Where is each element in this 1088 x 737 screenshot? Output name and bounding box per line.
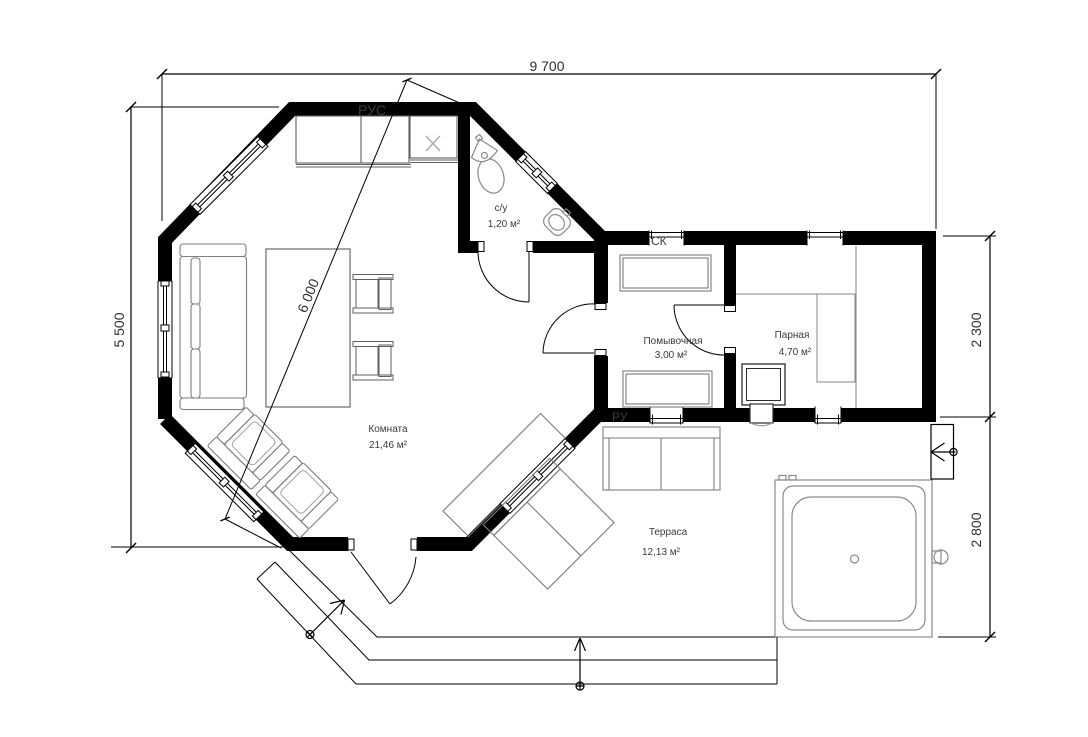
svg-text:5 500: 5 500: [111, 312, 127, 347]
svg-text:Помывочная: Помывочная: [643, 336, 702, 347]
svg-text:4,70 м²: 4,70 м²: [779, 347, 812, 358]
svg-text:с/у: с/у: [495, 203, 508, 214]
svg-text:СК: СК: [651, 234, 667, 248]
svg-text:9 700: 9 700: [529, 58, 564, 74]
svg-text:1,20 м²: 1,20 м²: [488, 219, 521, 230]
svg-text:Терраса: Терраса: [649, 527, 688, 538]
svg-text:2 800: 2 800: [968, 512, 984, 547]
svg-text:3,00 м²: 3,00 м²: [655, 350, 688, 361]
svg-text:Комната: Комната: [368, 424, 408, 435]
svg-text:21,46 м²: 21,46 м²: [369, 440, 408, 451]
svg-text:РУ: РУ: [612, 410, 628, 424]
svg-text:2 300: 2 300: [968, 312, 984, 347]
svg-text:12,13 м²: 12,13 м²: [642, 547, 681, 558]
svg-text:Парная: Парная: [775, 330, 810, 341]
svg-text:РУС: РУС: [358, 102, 386, 118]
